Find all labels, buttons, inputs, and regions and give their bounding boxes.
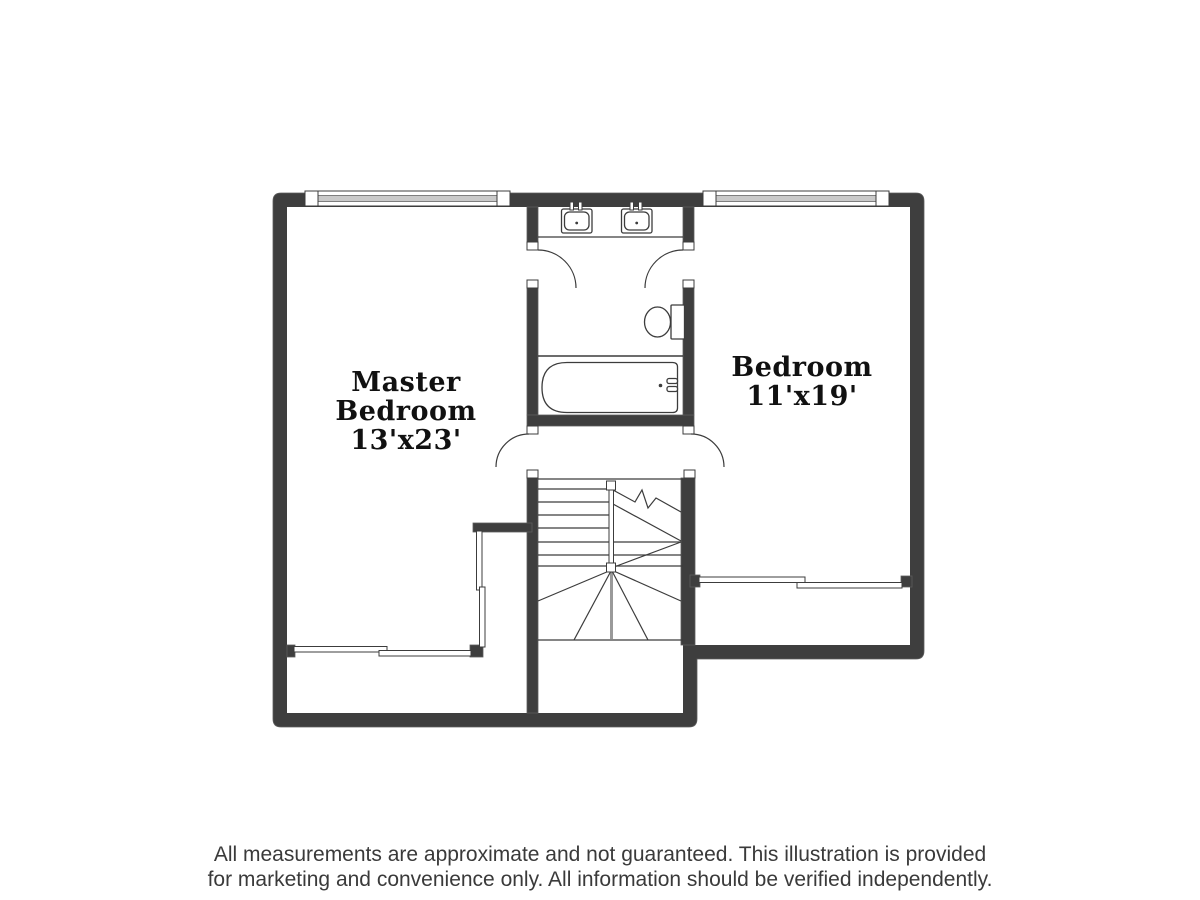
newel-post (607, 563, 616, 572)
stair-handrail (609, 488, 614, 568)
bedroom-dimensions: 11'x19' (746, 381, 857, 412)
disclaimer-text: All measurements are approximate and not… (0, 842, 1200, 892)
master-bedroom-dimensions: 13'x23' (350, 425, 461, 456)
bathtub-icon (538, 356, 683, 413)
disclaimer-line-1: All measurements are approximate and not… (0, 842, 1200, 867)
window-bedroom-icon (703, 191, 889, 206)
floor-plan-page: Master Bedroom 13'x23' Bedroom 11'x19' A… (0, 0, 1200, 900)
master-bedroom-label: Bedroom (335, 396, 476, 427)
newel-post (607, 481, 616, 490)
disclaimer-line-2: for marketing and convenience only. All … (0, 867, 1200, 892)
master-bedroom-label: Master (351, 367, 461, 398)
toilet-icon (645, 305, 685, 339)
bedroom-label: Bedroom (731, 352, 872, 383)
floor-plan-drawing: Master Bedroom 13'x23' Bedroom 11'x19' (0, 0, 1200, 900)
interior-floor (287, 207, 910, 713)
window-master-icon (305, 191, 510, 206)
